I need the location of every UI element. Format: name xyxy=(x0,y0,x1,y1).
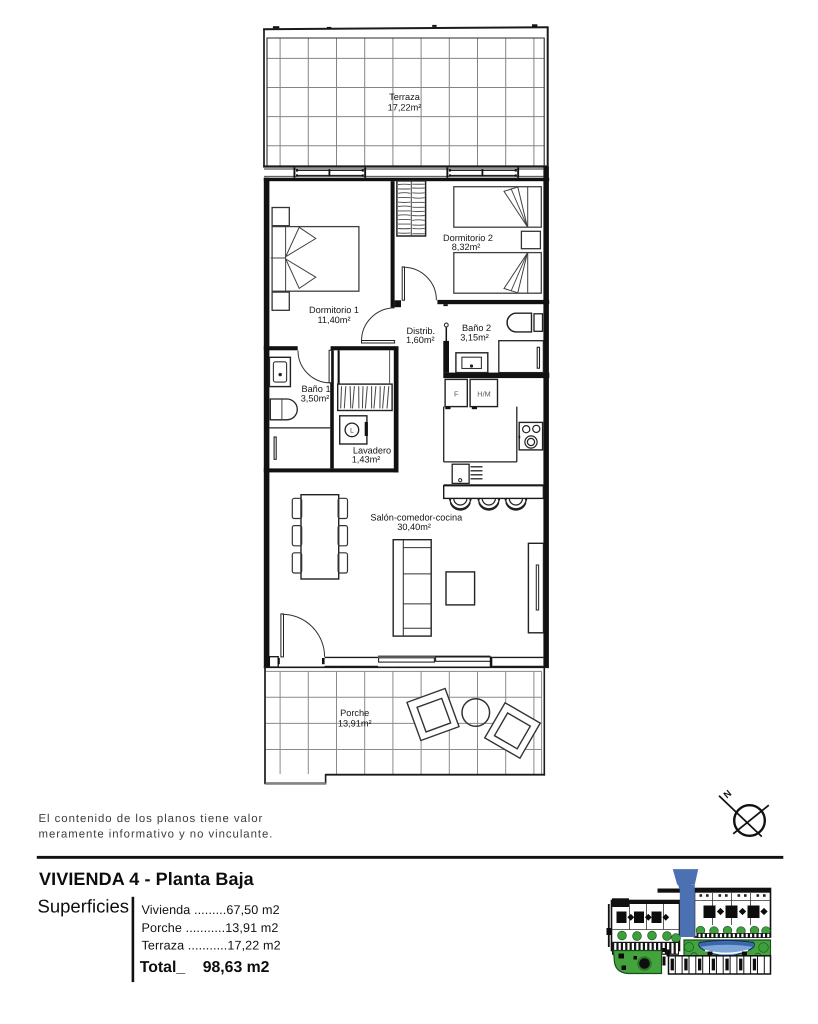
svg-text:8,32m²: 8,32m² xyxy=(452,242,481,252)
svg-text:F: F xyxy=(454,390,459,399)
svg-text:VIVIENDA 4 - Planta Baja: VIVIENDA 4 - Planta Baja xyxy=(39,869,255,889)
svg-text:3,15m²: 3,15m² xyxy=(460,333,489,343)
svg-text:Salón-comedor-cocina: Salón-comedor-cocina xyxy=(370,512,463,522)
svg-text:1,43m²: 1,43m² xyxy=(352,455,381,465)
svg-text:1,60m²: 1,60m² xyxy=(406,335,435,345)
svg-text:13,91m²: 13,91m² xyxy=(338,718,372,728)
svg-text:H/M: H/M xyxy=(477,390,490,399)
svg-text:Porche ...........13,91 m2: Porche ...........13,91 m2 xyxy=(142,921,279,935)
svg-text:Superficies: Superficies xyxy=(38,896,130,917)
svg-text:Porche: Porche xyxy=(340,708,369,718)
svg-text:3,50m²: 3,50m² xyxy=(301,393,330,403)
svg-text:Dormitorio 1: Dormitorio 1 xyxy=(309,305,359,315)
svg-text:El contenido de los planos tie: El contenido de los planos tiene valor xyxy=(39,813,264,825)
svg-text:Terraza ...........17,22 m2: Terraza ...........17,22 m2 xyxy=(142,938,281,952)
svg-text:30,40m²: 30,40m² xyxy=(397,522,431,532)
svg-text:meramente informativo y no vin: meramente informativo y no vinculante. xyxy=(39,829,274,841)
svg-text:Total_ 98,63 m2: Total_ 98,63 m2 xyxy=(140,959,270,976)
svg-text:L: L xyxy=(350,428,354,435)
svg-text:Vivienda .........67,50 m2: Vivienda .........67,50 m2 xyxy=(142,903,280,917)
svg-text:Terraza: Terraza xyxy=(389,92,421,102)
svg-text:17,22m²: 17,22m² xyxy=(388,103,422,113)
svg-text:11,40m²: 11,40m² xyxy=(317,315,350,325)
